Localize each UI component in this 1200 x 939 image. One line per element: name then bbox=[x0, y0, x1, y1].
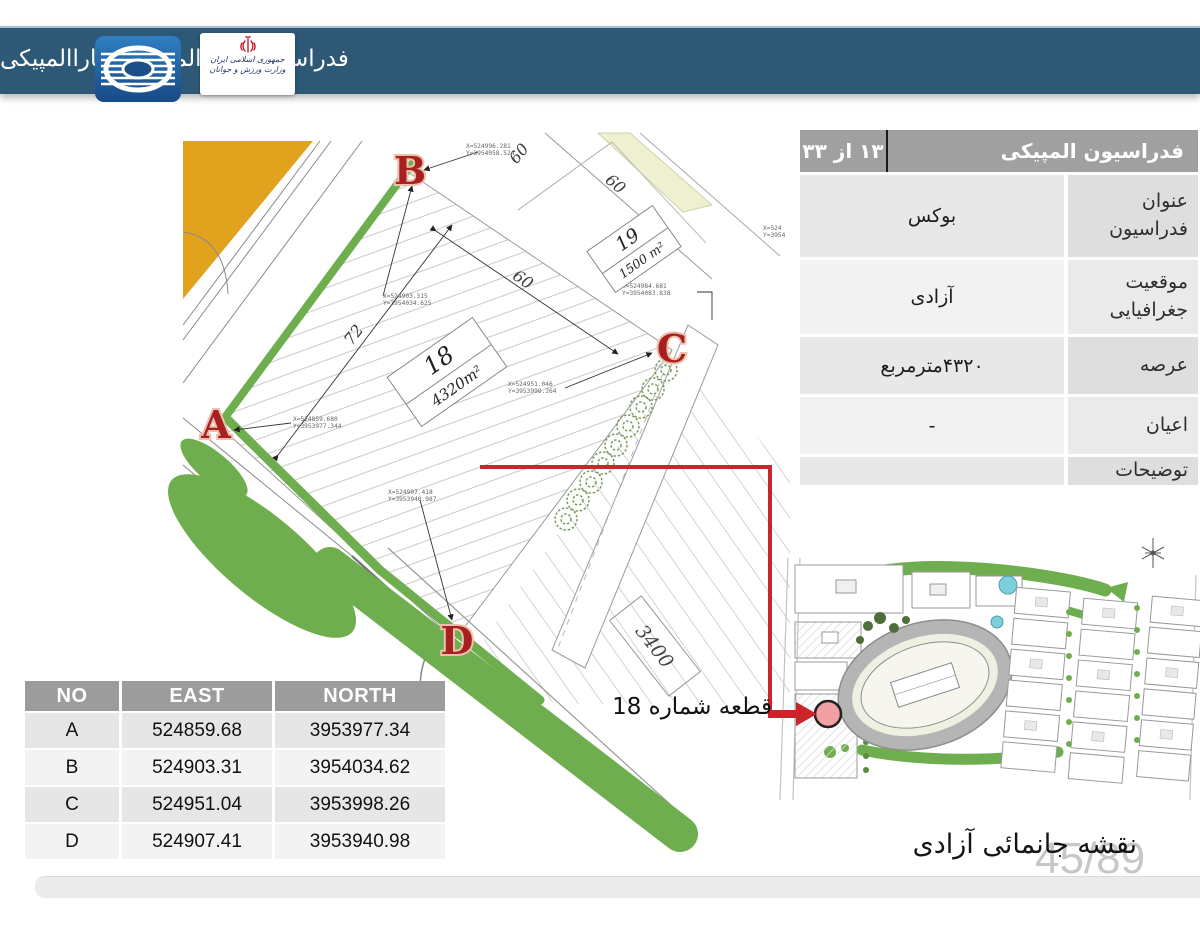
svg-text:X=524859.680: X=524859.680 bbox=[293, 416, 338, 423]
info-value: - bbox=[800, 397, 1064, 454]
info-row-location: موقعیت جغرافیایی آزادی bbox=[800, 260, 1198, 334]
plot19-label: 19 1500 m² bbox=[587, 206, 681, 293]
info-label: اعیان bbox=[1068, 397, 1198, 454]
badge-ministry-line: وزارت ورزش و جوانان bbox=[200, 65, 295, 75]
oval-stripes-icon bbox=[95, 36, 181, 102]
coordinates-table: NO EAST NORTH A 524859.68 3953977.34 B 5… bbox=[25, 681, 445, 861]
federation-info-table: فدراسیون المپیکی ۱۳ از ۳۳ عنوان فدراسیون… bbox=[800, 130, 1198, 488]
cell-north: 3953998.26 bbox=[275, 787, 445, 822]
col-header-no: NO bbox=[25, 681, 119, 711]
cell-east: 524903.31 bbox=[122, 750, 272, 785]
logo-reflection bbox=[95, 104, 181, 130]
coords-row-c: C 524951.04 3953998.26 bbox=[25, 787, 445, 822]
svg-text:X=524: X=524 bbox=[763, 225, 782, 232]
cell-east: 524951.04 bbox=[122, 787, 272, 822]
info-value: آزادی bbox=[800, 260, 1064, 334]
pool-large bbox=[999, 576, 1017, 594]
info-row-building: اعیان - bbox=[800, 397, 1198, 454]
sport-complex-logo bbox=[95, 36, 181, 102]
corner-label-d: D bbox=[441, 618, 474, 663]
coords-row-d: D 524907.41 3953940.98 bbox=[25, 824, 445, 859]
svg-text:Y=3953977.344: Y=3953977.344 bbox=[293, 423, 342, 430]
info-row-notes: توضیحات bbox=[800, 457, 1198, 485]
col-header-north: NORTH bbox=[275, 681, 445, 711]
cell-north: 3954034.62 bbox=[275, 750, 445, 785]
info-label: موقعیت جغرافیایی bbox=[1068, 260, 1198, 334]
cell-no: D bbox=[25, 824, 119, 859]
cell-no: A bbox=[25, 713, 119, 748]
plot18-marker bbox=[815, 701, 841, 727]
site-map-plots bbox=[1000, 584, 1200, 789]
svg-text:Y=3954083.838: Y=3954083.838 bbox=[622, 290, 671, 297]
cell-no: C bbox=[25, 787, 119, 822]
coords-row-b: B 524903.31 3954034.62 bbox=[25, 750, 445, 785]
badge-country-line: جمهوری اسلامی ایران bbox=[200, 55, 295, 65]
cell-north: 3953940.98 bbox=[275, 824, 445, 859]
info-label: توضیحات bbox=[1068, 457, 1198, 485]
corner-label-b: B bbox=[394, 148, 426, 193]
site-map bbox=[780, 538, 1200, 800]
cell-north: 3953977.34 bbox=[275, 713, 445, 748]
map-title: نقشه جانمائی آزادی bbox=[913, 829, 1137, 860]
ministry-badge: جمهوری اسلامی ایران وزارت ورزش و جوانان bbox=[200, 33, 295, 95]
info-table-title: فدراسیون المپیکی bbox=[888, 139, 1198, 163]
orange-block bbox=[183, 141, 313, 299]
svg-text:Y=3954: Y=3954 bbox=[763, 232, 786, 239]
info-label: عنوان فدراسیون bbox=[1068, 175, 1198, 257]
cell-east: 524859.68 bbox=[122, 713, 272, 748]
info-table-counter: ۱۳ از ۳۳ bbox=[800, 139, 886, 163]
info-table-divider bbox=[886, 130, 888, 172]
info-row-federation-name: عنوان فدراسیون بوکس bbox=[800, 175, 1198, 257]
corner-label-a: A bbox=[200, 402, 231, 447]
pool-small bbox=[991, 616, 1003, 628]
svg-text:X=524984.681: X=524984.681 bbox=[622, 283, 667, 290]
info-label: عرصه bbox=[1068, 337, 1198, 394]
annotation-text: X=524996.281 bbox=[466, 143, 511, 150]
svg-text:X=524907.418: X=524907.418 bbox=[388, 489, 433, 496]
info-value: ۴۳۲۰مترمربع bbox=[800, 337, 1064, 394]
svg-text:Y=3954034.625: Y=3954034.625 bbox=[383, 300, 432, 307]
info-row-land-area: عرصه ۴۳۲۰مترمربع bbox=[800, 337, 1198, 394]
dim-60-road: 60 bbox=[602, 170, 630, 198]
iran-emblem-icon bbox=[237, 35, 259, 55]
cell-no: B bbox=[25, 750, 119, 785]
plot-marker-caption: قطعه شماره 18 bbox=[612, 694, 772, 720]
info-value: بوکس bbox=[800, 175, 1064, 257]
svg-text:Y=3953940.987: Y=3953940.987 bbox=[388, 496, 437, 503]
bottom-bar bbox=[35, 876, 1200, 898]
col-header-east: EAST bbox=[122, 681, 272, 711]
svg-text:X=524951.046: X=524951.046 bbox=[508, 381, 553, 388]
info-table-header: فدراسیون المپیکی ۱۳ از ۳۳ bbox=[800, 130, 1198, 172]
coords-header-row: NO EAST NORTH bbox=[25, 681, 445, 711]
info-value bbox=[800, 457, 1064, 485]
svg-text:X=524903.315: X=524903.315 bbox=[383, 293, 428, 300]
cell-east: 524907.41 bbox=[122, 824, 272, 859]
svg-text:Y=3953998.264: Y=3953998.264 bbox=[508, 388, 557, 395]
badge-reflection bbox=[200, 96, 295, 116]
coords-row-a: A 524859.68 3953977.34 bbox=[25, 713, 445, 748]
slide: X=524996.281 Y=3954058.524 X=524903.315 … bbox=[0, 0, 1200, 939]
corner-label-c: C bbox=[657, 326, 687, 371]
north-star-icon bbox=[1142, 538, 1164, 568]
